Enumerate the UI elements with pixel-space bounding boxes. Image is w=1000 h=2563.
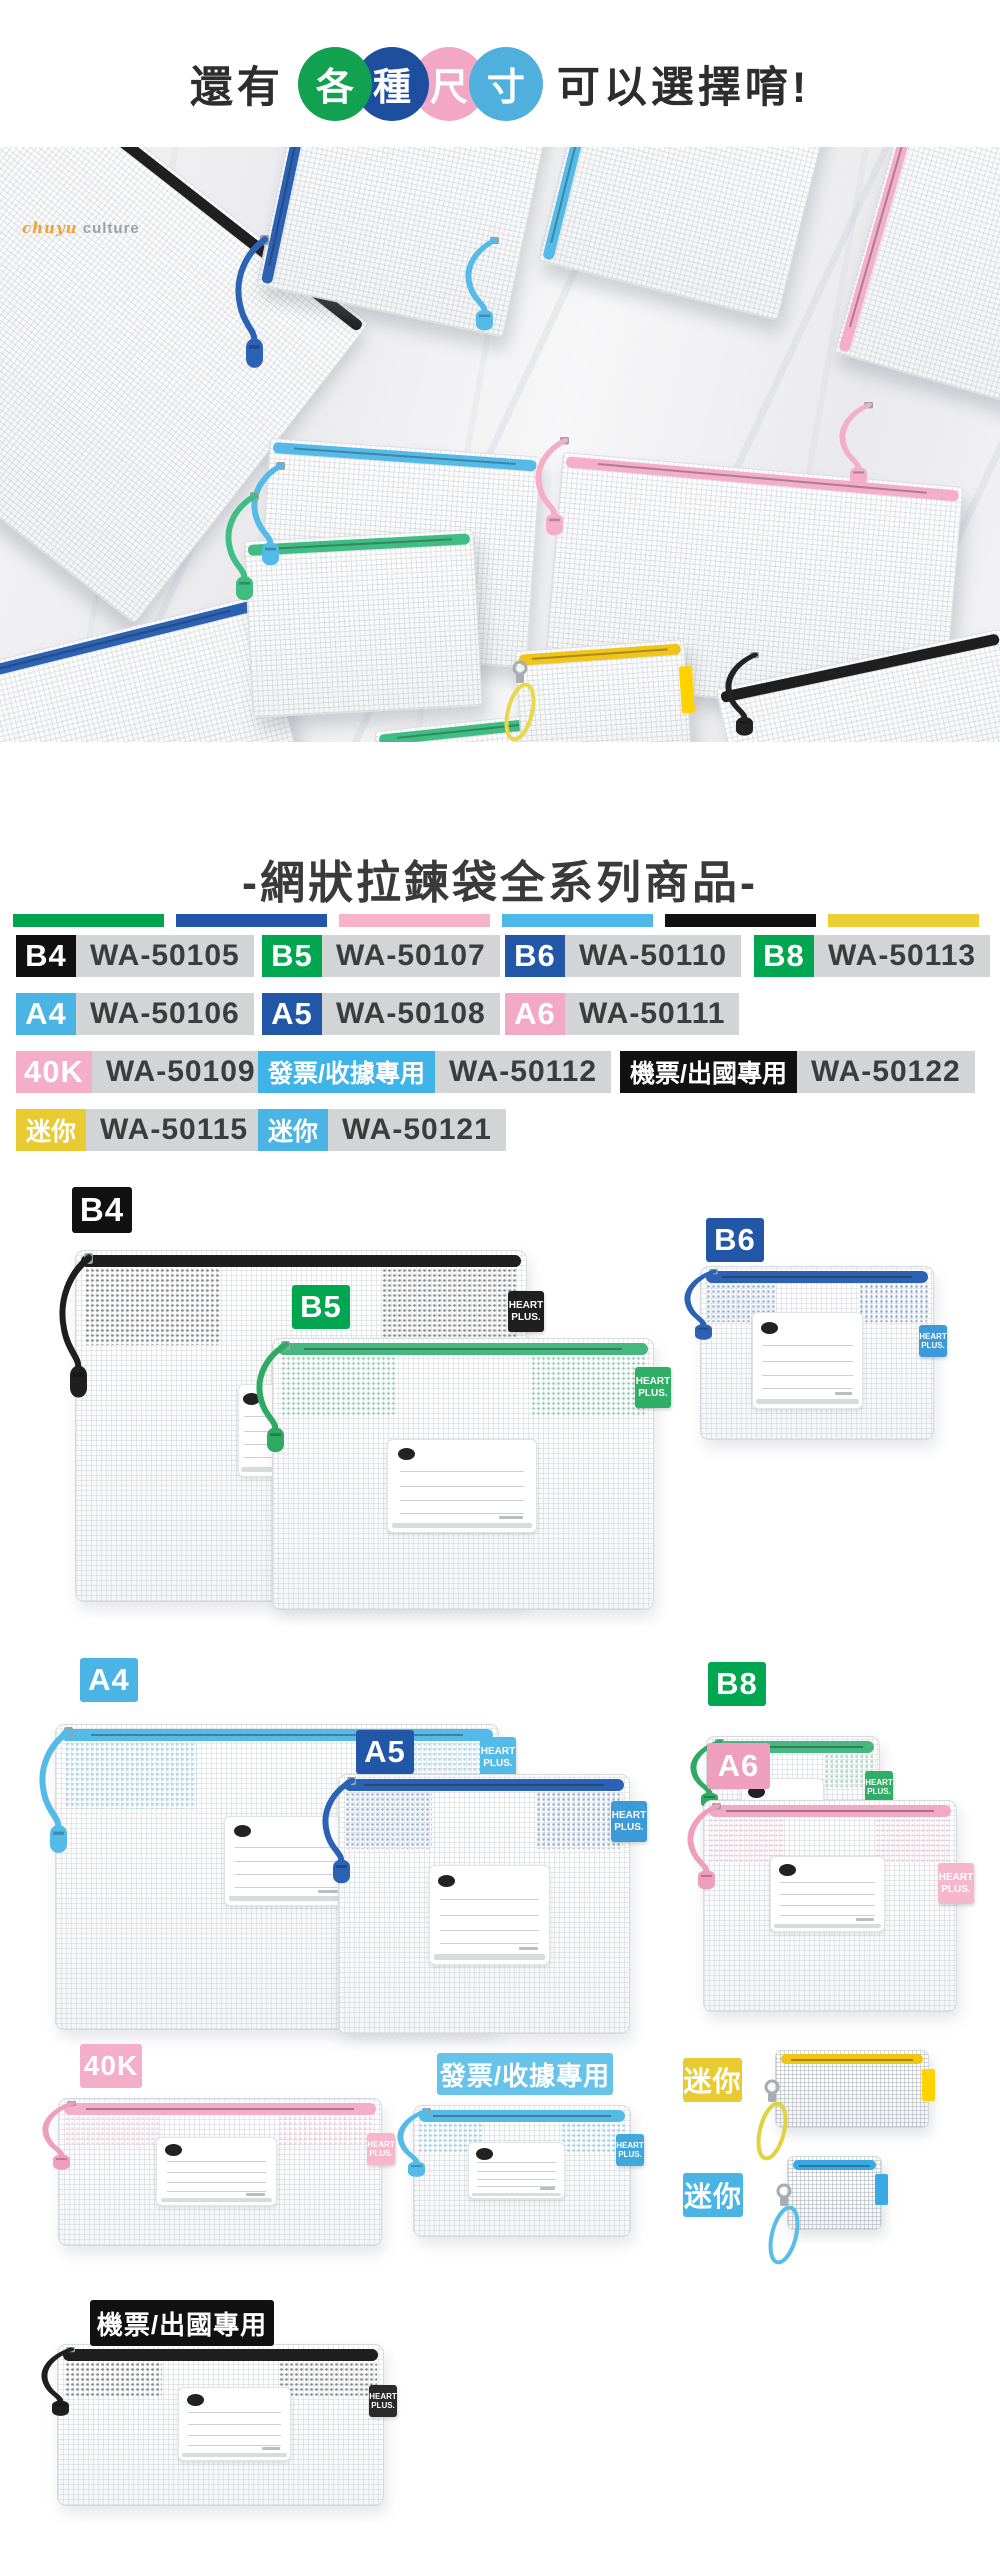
zipper-teeth	[726, 1810, 934, 1812]
zipper-teeth	[597, 463, 927, 494]
product-bag-invoice: HEARTPLUS.	[413, 2105, 631, 2237]
card-line	[762, 1345, 854, 1346]
product-code: WA-50112	[435, 1051, 611, 1093]
heart-plus-tag-line: PLUS.	[369, 2401, 397, 2410]
color-stripe-segment	[339, 914, 490, 927]
mesh-tape	[281, 1356, 395, 1415]
card-line	[400, 1513, 524, 1514]
size-badge: 迷你	[16, 1109, 86, 1151]
heart-plus-tag-line: PLUS.	[938, 1884, 974, 1896]
header-banner: 還有 各種尺寸 可以選擇唷!	[0, 36, 1000, 131]
size-label-a6: A6	[707, 1743, 770, 1789]
label-card	[224, 1816, 350, 1906]
product-photo: chuyu culture	[0, 147, 1000, 742]
zipper-strip	[261, 147, 319, 284]
card-line	[440, 1899, 540, 1900]
card-line	[400, 1500, 524, 1501]
color-stripe-segment	[13, 914, 164, 927]
card-line	[188, 2412, 281, 2413]
zipper-teeth	[532, 648, 668, 659]
strap-icon	[752, 2078, 792, 2164]
zipper-strip	[61, 1729, 493, 1741]
size-label-b6: B6	[706, 1218, 764, 1262]
code-item: B5WA-50107	[262, 935, 500, 977]
heart-plus-tag: HEARTPLUS.	[480, 1737, 516, 1778]
label-card	[178, 2387, 291, 2461]
size-label-b5: B5	[292, 1285, 350, 1329]
card-line	[440, 1943, 540, 1944]
code-item: B6WA-50110	[505, 935, 741, 977]
photo-mesh-bag	[537, 147, 829, 321]
card-line	[167, 2191, 267, 2192]
heart-plus-tag: HEARTPLUS.	[865, 1771, 893, 1803]
card-line	[167, 2182, 267, 2183]
mesh-tape	[65, 1742, 198, 1809]
card-line	[477, 2162, 557, 2163]
card-line	[167, 2161, 267, 2162]
speech-bubble-icon	[779, 1864, 796, 1876]
watermark: chuyu culture	[22, 219, 140, 237]
card-signature-mark	[519, 1947, 538, 1950]
code-item: A5WA-50108	[262, 993, 500, 1035]
speech-bubble-icon	[243, 1393, 260, 1405]
strap-icon	[764, 2182, 804, 2268]
zipper-strip	[781, 2054, 923, 2064]
zipper-teeth	[85, 2354, 356, 2356]
zipper-strip	[81, 1255, 521, 1267]
code-item: A4WA-50106	[16, 993, 254, 1035]
product-code: WA-50105	[76, 935, 254, 977]
size-label-ticket: 機票/出國專用	[90, 2300, 274, 2346]
color-stripe-segment	[665, 914, 816, 927]
heart-plus-tag: HEARTPLUS.	[938, 1863, 974, 1904]
size-circles: 各種尺寸	[298, 47, 543, 121]
product-code: WA-50106	[76, 993, 254, 1035]
heart-plus-tag-line: HEART	[369, 2392, 397, 2401]
heart-plus-tag: HEARTPLUS.	[616, 2134, 644, 2166]
zipper-strip	[709, 1805, 951, 1817]
size-label-invoice: 發票/收據專用	[437, 2053, 613, 2095]
card-signature-mark	[835, 1392, 852, 1395]
zipper-teeth	[112, 1260, 490, 1262]
card-line	[235, 1874, 339, 1875]
card-line	[440, 1930, 540, 1931]
mesh-tape	[65, 2116, 162, 2148]
size-circle-char: 各	[298, 47, 372, 121]
speech-bubble-icon	[234, 1825, 251, 1837]
heart-plus-tag: HEARTPLUS.	[367, 2133, 395, 2165]
speech-bubble-icon	[438, 1875, 455, 1887]
color-stripe-segment	[828, 914, 979, 927]
heart-plus-tag-line: HEART	[367, 2140, 395, 2149]
zipper-strip	[63, 2349, 378, 2361]
zipper-strip	[419, 2110, 625, 2122]
zipper-strip	[706, 1271, 928, 1283]
zipper-strip	[838, 147, 935, 353]
heart-plus-tag-line: PLUS.	[865, 1787, 893, 1796]
speech-bubble-icon	[398, 1448, 415, 1460]
card-line	[780, 1905, 875, 1906]
label-card	[752, 1312, 863, 1409]
speech-bubble-icon	[476, 2148, 493, 2160]
card-signature-mark	[262, 2447, 280, 2450]
product-code: WA-50111	[565, 993, 739, 1035]
speech-bubble-icon	[761, 1322, 778, 1334]
heart-plus-tag-line: HEART	[480, 1746, 516, 1758]
label-card	[429, 1865, 550, 1965]
card-line	[188, 2445, 281, 2446]
card-signature-mark	[499, 1516, 523, 1519]
heart-plus-tag-line: PLUS.	[508, 1312, 544, 1324]
label-card	[770, 1856, 885, 1932]
size-label-a4: A4	[80, 1658, 138, 1702]
size-badge: A5	[262, 993, 322, 1035]
product-code: WA-50108	[322, 993, 500, 1035]
product-code: WA-50115	[86, 1109, 262, 1151]
watermark-label: culture	[83, 220, 140, 237]
card-line	[400, 1486, 524, 1487]
heart-plus-tag-line: PLUS.	[611, 1822, 647, 1834]
code-item: A6WA-50111	[505, 993, 739, 1035]
heart-plus-tag-line: HEART	[919, 1332, 947, 1341]
card-footer-strip	[472, 2193, 561, 2196]
heart-plus-tag-line: PLUS.	[635, 1388, 671, 1400]
zipper-teeth	[364, 1784, 605, 1786]
card-footer-strip	[182, 2453, 286, 2457]
zipper-strip	[542, 147, 603, 261]
card-line	[762, 1361, 854, 1362]
size-label-b8: B8	[708, 1662, 766, 1706]
zipper-teeth	[266, 538, 452, 550]
card-line	[762, 1388, 854, 1389]
zipper-teeth	[86, 2108, 354, 2110]
zipper-strip	[273, 442, 537, 471]
card-line	[235, 1861, 339, 1862]
card-line	[780, 1915, 875, 1916]
zipper-strip	[344, 1779, 624, 1791]
card-footer-strip	[434, 1954, 546, 1960]
color-stripe	[0, 914, 1000, 927]
photo-zipper-pull-icon	[836, 402, 876, 487]
product-code: WA-50107	[322, 935, 500, 977]
photo-mesh-bag	[833, 147, 1000, 433]
heart-plus-tag-line: PLUS.	[616, 2150, 644, 2159]
size-badge: 迷你	[258, 1109, 328, 1151]
product-bag-a6: HEARTPLUS.	[703, 1800, 957, 2012]
heart-plus-tag-line: HEART	[635, 1376, 671, 1388]
code-item: 迷你WA-50115	[16, 1109, 262, 1151]
color-stripe-segment	[502, 914, 653, 927]
photo-mesh-bag	[244, 529, 483, 718]
mesh-tape	[531, 1356, 645, 1415]
card-line	[235, 1847, 339, 1848]
mesh-tape	[65, 2362, 163, 2397]
card-signature-mark	[246, 2193, 265, 2196]
product-bag-ticket: HEARTPLUS.	[57, 2344, 384, 2506]
size-badge: 機票/出國專用	[620, 1051, 797, 1093]
product-code: WA-50113	[814, 935, 990, 977]
heart-plus-tag: HEARTPLUS.	[611, 1801, 647, 1842]
mesh-tape	[279, 2362, 377, 2397]
card-line	[780, 1882, 875, 1883]
size-badge: A4	[16, 993, 76, 1035]
card-line	[188, 2435, 281, 2436]
zipper-teeth	[294, 448, 515, 465]
photo-mesh-bag	[514, 639, 691, 742]
mesh-tape	[875, 1818, 951, 1864]
zipper-teeth	[269, 147, 311, 265]
card-line	[477, 2179, 557, 2180]
speech-bubble-icon	[165, 2144, 182, 2156]
mesh-tape	[278, 2116, 375, 2148]
card-signature-mark	[318, 1890, 338, 1893]
product-bag-40k: HEARTPLUS.	[58, 2098, 382, 2246]
size-badge: B5	[262, 935, 322, 977]
label-card	[387, 1439, 537, 1533]
zipper-teeth	[304, 1348, 622, 1350]
zipper-teeth	[849, 147, 924, 327]
card-line	[400, 1471, 524, 1472]
zipper-teeth	[0, 610, 231, 678]
code-item: 40KWA-50109	[16, 1051, 270, 1093]
size-badge: B8	[754, 935, 814, 977]
heart-plus-tag: HEARTPLUS.	[919, 1325, 947, 1357]
zipper-teeth	[550, 147, 594, 243]
product-code: WA-50110	[565, 935, 741, 977]
card-footer-strip	[392, 1523, 531, 1529]
heart-plus-tag-line: HEART	[611, 1810, 647, 1822]
color-stripe-segment	[176, 914, 327, 927]
card-line	[780, 1894, 875, 1895]
series-title: -網狀拉鍊袋全系列商品-	[0, 846, 1000, 911]
size-badge: B6	[505, 935, 565, 977]
label-card	[468, 2142, 565, 2199]
zipper-strip	[64, 2103, 376, 2115]
heart-plus-tag-line: HEART	[865, 1778, 893, 1787]
card-signature-mark	[540, 2187, 555, 2190]
header-suffix-text: 可以選擇唷!	[557, 53, 810, 115]
side-tab	[875, 2174, 888, 2204]
product-bag-b6: HEARTPLUS.	[700, 1266, 934, 1440]
size-label-mini-blue: 迷你	[683, 2173, 743, 2217]
product-code: WA-50109	[92, 1051, 270, 1093]
mesh-tape	[382, 1268, 517, 1345]
product-code: WA-50121	[328, 1109, 506, 1151]
product-bag-b5: HEARTPLUS.	[272, 1338, 654, 1610]
product-promo-page: 還有 各種尺寸 可以選擇唷! chuyu culture -網狀拉鍊袋全系列商品…	[0, 0, 1000, 2563]
size-circle-char: 寸	[469, 47, 543, 121]
product-pouch-mini-yellow	[775, 2050, 929, 2128]
zipper-teeth	[799, 2165, 870, 2167]
heart-plus-tag: HEARTPLUS.	[508, 1291, 544, 1332]
label-card	[156, 2137, 277, 2206]
heart-plus-tag-line: HEART	[938, 1872, 974, 1884]
card-signature-mark	[856, 1918, 874, 1921]
zipper-teeth	[791, 2059, 913, 2061]
size-badge: 40K	[16, 1051, 92, 1093]
product-code: WA-50122	[797, 1051, 975, 1093]
code-item: 發票/收據專用WA-50112	[258, 1051, 611, 1093]
size-badge: 發票/收據專用	[258, 1051, 435, 1093]
size-badge: A6	[505, 993, 565, 1035]
card-line	[188, 2424, 281, 2425]
zipper-strip	[793, 2160, 876, 2170]
code-item: B8WA-50113	[754, 935, 990, 977]
card-line	[167, 2172, 267, 2173]
speech-bubble-icon	[187, 2394, 204, 2406]
size-label-b4: B4	[72, 1187, 132, 1233]
card-line	[440, 1915, 540, 1916]
size-badge: B4	[16, 935, 76, 977]
zipper-strip	[519, 643, 681, 665]
heart-plus-tag-line: PLUS.	[367, 2149, 395, 2158]
size-label-mini-yellow: 迷你	[683, 2058, 742, 2102]
product-bag-a5: HEARTPLUS.	[338, 1774, 630, 2034]
card-footer-strip	[756, 1399, 858, 1405]
code-item: 迷你WA-50121	[258, 1109, 506, 1151]
size-label-a5: A5	[356, 1730, 414, 1774]
code-item: B4WA-50105	[16, 935, 254, 977]
code-item: 機票/出國專用WA-50122	[620, 1051, 975, 1093]
header-prefix-text: 還有	[190, 53, 284, 115]
card-footer-strip	[774, 1924, 880, 1928]
zipper-strip	[278, 1343, 648, 1355]
heart-plus-tag-line: PLUS.	[480, 1758, 516, 1770]
heart-plus-tag: HEARTPLUS.	[635, 1367, 671, 1408]
side-tab	[922, 2069, 935, 2101]
zipper-teeth	[722, 1276, 913, 1278]
heart-plus-tag-line: HEART	[616, 2141, 644, 2150]
card-line	[235, 1887, 339, 1888]
heart-plus-tag-line: HEART	[508, 1300, 544, 1312]
watermark-script: chuyu	[22, 219, 78, 237]
size-label-40k: 40K	[80, 2044, 142, 2088]
mesh-tape	[859, 1284, 929, 1322]
mesh-tape	[85, 1268, 220, 1345]
product-pouch-mini-blue	[787, 2156, 882, 2230]
mesh-tape	[345, 1792, 432, 1849]
card-line	[477, 2171, 557, 2172]
heart-plus-tag: HEARTPLUS.	[369, 2385, 397, 2417]
card-line	[762, 1375, 854, 1376]
zipper-strip	[566, 456, 959, 501]
card-footer-strip	[229, 1896, 346, 1901]
heart-plus-tag-line: PLUS.	[919, 1341, 947, 1350]
card-footer-strip	[161, 2198, 273, 2202]
zipper-teeth	[433, 2115, 610, 2117]
